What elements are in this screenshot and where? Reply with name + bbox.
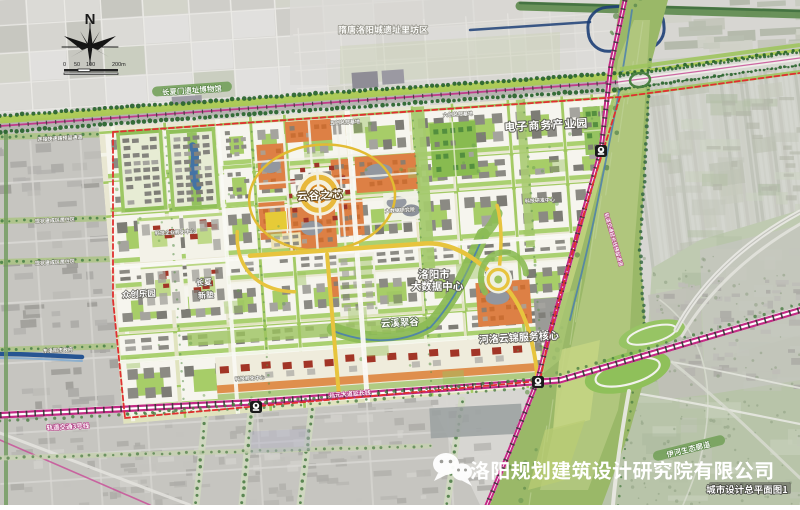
svg-text:50: 50	[74, 62, 80, 68]
svg-text:0: 0	[63, 62, 66, 68]
svg-text:100: 100	[86, 62, 95, 68]
svg-text:200m: 200m	[112, 62, 126, 68]
